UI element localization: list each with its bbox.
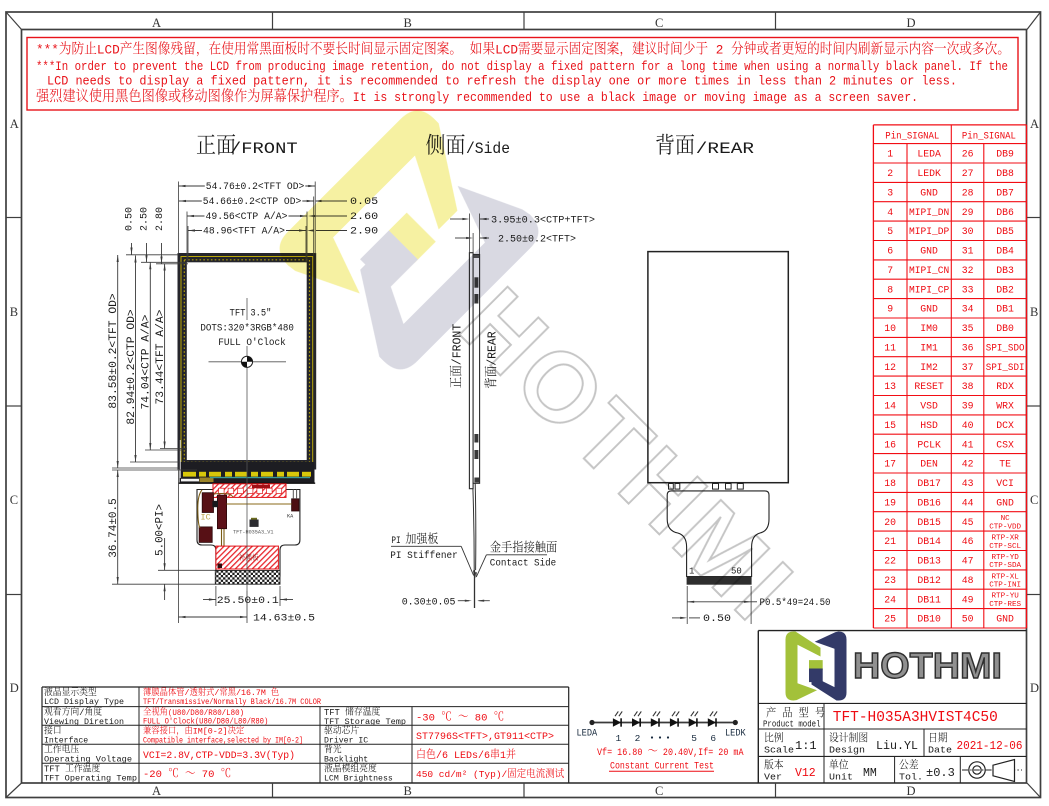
svg-text:DB10: DB10 [917,614,941,625]
svg-text:3: 3 [887,187,893,198]
svg-text:Operating Voltage: Operating Voltage [44,754,132,764]
svg-text:2.90: 2.90 [350,227,378,238]
svg-text:Contact Side: Contact Side [490,558,556,570]
svg-text:A: A [152,784,161,798]
svg-text:WRX: WRX [996,401,1014,412]
svg-text:1: 1 [887,149,893,160]
svg-text:19: 19 [884,498,896,509]
svg-text:RTP-XR: RTP-XR [992,535,1020,543]
svg-text:46: 46 [962,536,974,547]
svg-text:DB9: DB9 [996,149,1014,160]
svg-text:25.50±0.1: 25.50±0.1 [217,596,279,607]
svg-text:38: 38 [962,381,974,392]
svg-text:Design: Design [829,746,865,756]
svg-text:RTP-YD: RTP-YD [992,554,1020,562]
svg-text:44: 44 [962,498,974,509]
svg-text:DB12: DB12 [917,575,941,586]
svg-text:37: 37 [962,362,974,373]
svg-text:Vf= 16.80: Vf= 16.80 [597,747,647,759]
svg-text:2: 2 [635,733,641,744]
svg-text:TFT Storage Temp: TFT Storage Temp [324,718,406,727]
svg-text:50: 50 [962,614,974,625]
svg-text:***In order to prevent the LCD: ***In order to prevent the LCD from prod… [36,59,1008,74]
svg-text:Pin_SIGNAL: Pin_SIGNAL [885,131,939,143]
svg-text:FULL O'Clock(U80/D80/L80/R80): FULL O'Clock(U80/D80/L80/R80) [143,718,268,727]
svg-text:A: A [1030,117,1039,131]
svg-text:DB2: DB2 [996,284,1014,295]
svg-text:12: 12 [884,362,896,373]
svg-text:CTP-RES: CTP-RES [989,601,1021,609]
svg-text:83.58±0.2<TFT OD>: 83.58±0.2<TFT OD> [108,293,120,408]
svg-text:B: B [1030,305,1038,319]
svg-text:/6 LEDs/6: /6 LEDs/6 [436,750,490,762]
svg-text:VCI=2.8V,CTP-VDD=3.3V(Typ): VCI=2.8V,CTP-VDD=3.3V(Typ) [143,750,295,762]
svg-text:14.63±0.5: 14.63±0.5 [253,613,315,624]
svg-text:C: C [655,784,663,798]
svg-text:0.30±0.05: 0.30±0.05 [402,598,456,609]
svg-text:±0.3: ±0.3 [926,766,955,780]
svg-text:SPI_SDO: SPI_SDO [986,342,1025,353]
svg-text:A: A [152,16,161,30]
svg-text:TE: TE [999,459,1011,470]
svg-text:13: 13 [884,381,896,392]
svg-text:LEDK: LEDK [917,168,941,179]
svg-text:MM: MM [863,767,877,780]
svg-text:7: 7 [887,265,893,276]
svg-text:D: D [907,16,916,30]
svg-text:IM1: IM1 [920,342,938,353]
svg-text:80: 80 [469,712,494,724]
svg-text:Driver IC: Driver IC [324,736,368,746]
svg-text:Scale: Scale [764,746,794,756]
svg-text:30: 30 [962,226,974,237]
svg-text:49.56<CTP A/A>: 49.56<CTP A/A> [206,211,288,223]
svg-text:5: 5 [691,733,697,744]
svg-text:/REAR: /REAR [696,140,755,158]
svg-text:D: D [10,681,19,695]
svg-text:MIPI_DN: MIPI_DN [909,207,949,218]
svg-text:6: 6 [887,246,893,257]
svg-text:15: 15 [884,420,896,431]
svg-text:47: 47 [962,556,974,567]
svg-text:8: 8 [887,284,893,295]
svg-text:DB6: DB6 [996,207,1014,218]
svg-text:D: D [1030,681,1039,695]
svg-text:VSD: VSD [920,401,938,412]
svg-text:DB14: DB14 [917,536,941,547]
svg-text:Liu.YL: Liu.YL [876,739,918,753]
svg-text:5: 5 [887,226,893,237]
svg-text:CTP-VDD: CTP-VDD [989,523,1021,531]
svg-text:42: 42 [962,459,974,470]
svg-text:ST7796S<TFT>,GT911<CTP>: ST7796S<TFT>,GT911<CTP> [416,732,554,743]
svg-text:DB1: DB1 [996,304,1014,315]
svg-text:C: C [1030,493,1038,507]
svg-text:GND: GND [920,304,938,315]
svg-text:16: 16 [884,439,896,450]
svg-text:39: 39 [962,401,974,412]
svg-text:3.5″: 3.5″ [250,308,271,320]
svg-text:B: B [404,16,412,30]
svg-text:LCD needs to display a fixed p: LCD needs to display a fixed pattern, it… [47,74,957,89]
svg-text:1:1: 1:1 [795,739,817,753]
svg-text:28: 28 [962,187,974,198]
svg-text:/: / [185,688,190,698]
svg-text:CTP-SCL: CTP-SCL [989,543,1021,551]
svg-text:C: C [10,493,18,507]
svg-text:40: 40 [962,420,974,431]
svg-text:Compatible interface,selected: Compatible interface,selected by IM[0-2] [143,736,303,745]
svg-text:54.66±0.2<CTP OD>: 54.66±0.2<CTP OD> [203,197,301,208]
svg-text:10: 10 [884,323,896,334]
svg-text:It is strongly recommended to: It is strongly recommended to use a blac… [353,90,918,105]
svg-text:1: 1 [500,751,506,762]
svg-text:TFT: TFT [230,309,246,320]
svg-text:LEDA: LEDA [917,149,941,160]
svg-text:2.50: 2.50 [139,207,150,231]
svg-text:DB11: DB11 [917,594,941,605]
svg-text:70: 70 [196,769,221,781]
svg-text:Backlight: Backlight [324,754,368,764]
svg-text:26: 26 [962,149,974,160]
svg-text:IM2: IM2 [920,362,938,373]
svg-text:GND: GND [920,187,938,198]
svg-text:B: B [404,784,412,798]
svg-text:24: 24 [884,594,896,605]
svg-text:***: *** [36,43,59,58]
svg-text:TFT/Transmissive/Normally Blac: TFT/Transmissive/Normally Black/16.7M CO… [143,698,321,707]
svg-text:34: 34 [962,304,974,315]
svg-text:32: 32 [962,265,974,276]
svg-text:LCM Brightness: LCM Brightness [324,774,393,784]
svg-text:FULL O'Clock: FULL O'Clock [218,337,286,349]
svg-text:2.80: 2.80 [155,207,166,231]
svg-text:DEN: DEN [920,459,938,470]
svg-text:/FRONT: /FRONT [230,140,298,158]
svg-text:C: C [655,16,663,30]
svg-text:RTP-XL: RTP-XL [992,573,1020,581]
svg-text:DB13: DB13 [917,556,941,567]
svg-text:GND: GND [996,498,1014,509]
svg-text:31: 31 [962,246,974,257]
svg-text:41: 41 [962,439,974,450]
svg-text:IM0: IM0 [920,323,938,334]
svg-text:DCX: DCX [996,420,1014,431]
svg-text:54.76±0.2<TFT OD>: 54.76±0.2<TFT OD> [206,182,304,193]
svg-text:DOTS:320*3RGB*480: DOTS:320*3RGB*480 [200,322,294,334]
svg-text:KA: KA [287,514,294,520]
svg-text:DB0: DB0 [996,323,1014,334]
svg-text:IC: IC [201,513,211,523]
svg-text:RTP-YU: RTP-YU [992,593,1020,601]
svg-text:49: 49 [962,594,974,605]
svg-text:45: 45 [962,517,974,528]
svg-text:NC: NC [1001,515,1011,523]
svg-text:Ver: Ver [764,773,782,783]
svg-text:DB7: DB7 [996,187,1014,198]
svg-text:/Side: /Side [466,140,510,158]
svg-text:PCLK: PCLK [917,439,941,450]
svg-text:(U80/D80/R80/L80): (U80/D80/R80/L80) [168,708,244,718]
svg-text:RESET: RESET [914,381,944,392]
svg-text:6: 6 [710,733,716,744]
svg-text:HSD: HSD [920,420,938,431]
svg-text:CTP-INI: CTP-INI [989,582,1021,590]
svg-text:82.94±0.2<CTP OD>: 82.94±0.2<CTP OD> [126,309,138,424]
svg-text:TFT Operating Temp: TFT Operating Temp [44,774,137,784]
svg-text:MIPI_DP: MIPI_DP [909,226,949,237]
svg-text:Pin_SIGNAL: Pin_SIGNAL [962,131,1016,143]
svg-text:73.44<TFT A/A>: 73.44<TFT A/A> [155,309,167,404]
svg-text:DB3: DB3 [996,265,1014,276]
svg-text:0.50: 0.50 [124,207,135,231]
svg-text:SPI_SDI: SPI_SDI [986,362,1025,373]
svg-text:/: / [79,708,84,718]
svg-text:CTP-SDA: CTP-SDA [989,562,1021,570]
svg-text:DB17: DB17 [917,478,941,489]
svg-text:LEDK: LEDK [725,729,746,740]
svg-text:2: 2 [887,168,893,179]
svg-text:MIPI_CP: MIPI_CP [909,284,949,295]
svg-text:CSX: CSX [996,439,1014,450]
svg-text:11: 11 [884,342,896,353]
svg-text:/16.7M: /16.7M [236,688,271,698]
svg-text:LCD Display Type: LCD Display Type [44,697,124,707]
svg-text:29: 29 [962,207,974,218]
svg-text:GND: GND [996,614,1014,625]
svg-text:20.40V,If= 20 mA: 20.40V,If= 20 mA [658,747,744,759]
svg-text:36.74±0.5: 36.74±0.5 [108,498,120,557]
svg-text:B: B [10,305,18,319]
svg-text:9: 9 [887,304,893,315]
svg-text:Product model: Product model [763,720,821,730]
svg-text:Viewing Diretion: Viewing Diretion [44,717,124,727]
svg-text:PI: PI [391,535,405,547]
svg-text:450 cd/m² (Typ)/: 450 cd/m² (Typ)/ [416,769,508,780]
svg-text:DB16: DB16 [917,498,941,509]
svg-text:Date: Date [928,746,952,756]
svg-text:DB5: DB5 [996,226,1014,237]
svg-text:VCI: VCI [996,478,1014,489]
svg-text:DB4: DB4 [996,246,1014,257]
svg-text:17: 17 [884,459,896,470]
svg-text:14: 14 [884,401,896,412]
svg-text:TFT-H035A3HVIST4C50: TFT-H035A3HVIST4C50 [833,710,998,726]
svg-text:DB8: DB8 [996,168,1014,179]
svg-text:25: 25 [884,614,896,625]
svg-text:2021-12-06: 2021-12-06 [957,740,1023,753]
svg-text:35: 35 [962,323,974,334]
svg-text:RDX: RDX [996,381,1014,392]
svg-text:PI Stiffener: PI Stiffener [390,550,458,562]
svg-text:18: 18 [884,478,896,489]
svg-text:Tol.: Tol. [899,773,923,783]
svg-text:LCD: LCD [495,43,518,58]
svg-text:23: 23 [884,575,896,586]
svg-text:Unit: Unit [829,773,853,783]
svg-text:V12: V12 [795,767,816,780]
svg-text:4: 4 [887,207,893,218]
svg-text:/: / [214,688,219,698]
svg-text:20: 20 [884,517,896,528]
svg-text:A: A [10,117,19,131]
svg-text:IM[0-2]: IM[0-2] [193,727,228,737]
svg-text:GND: GND [920,246,938,257]
svg-text:36: 36 [962,342,974,353]
svg-text:33: 33 [962,284,974,295]
svg-text:-20: -20 [143,769,168,781]
svg-text:TFT-H035A3_V1: TFT-H035A3_V1 [233,530,273,536]
svg-text:48.96<TFT A/A>: 48.96<TFT A/A> [203,226,285,238]
svg-text:21: 21 [884,536,896,547]
svg-text:DB15: DB15 [917,517,941,528]
svg-text:MIPI_CN: MIPI_CN [909,265,949,276]
svg-text:74.04<CTP A/A>: 74.04<CTP A/A> [141,314,153,409]
svg-text:TFT: TFT [44,765,65,775]
svg-text:1: 1 [616,733,622,744]
svg-text:HOTHMI: HOTHMI [853,645,1002,686]
svg-text:Constant Current Test: Constant Current Test [610,761,714,772]
svg-text:TFT: TFT [324,708,345,718]
svg-text:LEDA: LEDA [577,729,598,740]
svg-text:27: 27 [962,168,974,179]
svg-text:D: D [907,784,916,798]
svg-text:22: 22 [884,556,896,567]
svg-text:48: 48 [962,575,974,586]
svg-text:LCD: LCD [97,43,120,58]
svg-text:43: 43 [962,478,974,489]
svg-text:-30: -30 [416,712,441,724]
svg-text:2: 2 [708,43,731,58]
